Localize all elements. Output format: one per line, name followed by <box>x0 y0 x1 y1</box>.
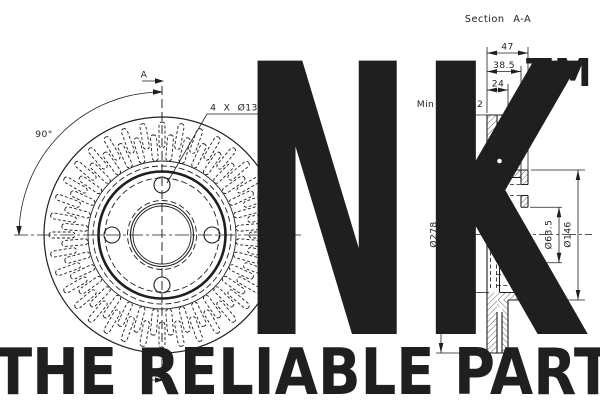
vent-slot <box>70 190 96 206</box>
hat-wall-top <box>487 170 521 178</box>
flange-block-4 <box>521 286 528 301</box>
arc-arrow-top <box>153 89 163 94</box>
vent-merge-bottom <box>497 300 508 307</box>
vent-slot <box>191 301 207 327</box>
vent-slot <box>62 223 88 231</box>
dim-278-label: Ø278 <box>429 221 440 247</box>
vent-slot <box>191 143 207 169</box>
vent-slot <box>64 206 91 219</box>
vent-end-top <box>497 159 502 164</box>
vent-slot <box>78 175 103 195</box>
vent-slot <box>166 309 174 335</box>
dim-136-label: Ø136 <box>450 221 461 247</box>
section-title: Section A-A <box>465 14 532 25</box>
vent-slot <box>89 162 112 185</box>
cut-arrow-top <box>155 78 164 84</box>
vent-end-bottom <box>497 307 502 312</box>
vent-slot <box>133 137 146 164</box>
bolt-note-label: 4 X Ø13.8 R54 <box>210 103 294 114</box>
vent-slot <box>62 239 88 247</box>
vent-slot <box>150 309 158 335</box>
dim-146-label: Ø146 <box>563 221 574 247</box>
drawing-canvas: NK TM THE RELIABLE PART 90° <box>0 0 600 400</box>
section-marker-top: A <box>141 70 164 84</box>
outboard-plate-bottom <box>487 300 497 353</box>
trademark-mark: TM <box>526 51 594 95</box>
flange-block-2 <box>521 196 528 208</box>
vent-slot <box>178 306 191 333</box>
vent-slot <box>102 294 122 319</box>
outboard-plate-top <box>487 115 497 170</box>
dim-38-5-label: 38.5 <box>493 60 515 71</box>
vent-slot <box>213 286 236 309</box>
vent-slot <box>55 194 81 209</box>
cut-label-bottom: A <box>142 369 149 380</box>
angle-arc <box>19 92 162 235</box>
arc-arrow-left <box>16 226 21 236</box>
flange-block-1 <box>521 170 528 185</box>
inboard-plate-top <box>502 115 508 163</box>
vent-slot <box>133 306 146 333</box>
dim-63-5-label: Ø63.5 <box>544 220 555 250</box>
vent-slot <box>117 143 133 169</box>
vent-slot <box>70 264 96 280</box>
dim-47-label: 47 <box>501 42 514 53</box>
angle-note-label: 90° <box>35 129 53 140</box>
vent-slot <box>150 135 158 161</box>
vent-slot <box>89 286 112 309</box>
flange-block-3 <box>521 263 528 275</box>
vent-slot <box>121 128 136 154</box>
vent-slot <box>166 135 174 161</box>
vent-slot <box>213 162 236 185</box>
brake-disc-technical-drawing: NK TM THE RELIABLE PART 90° <box>0 0 600 400</box>
vent-slot <box>117 301 133 327</box>
vent-merge-top <box>497 163 508 170</box>
cut-label-top: A <box>141 70 148 81</box>
vent-slot <box>64 251 91 264</box>
min-thickness-note: Min Th 22.2 <box>417 99 483 110</box>
vent-slot <box>55 262 81 277</box>
inboard-plate-bottom <box>502 307 508 353</box>
dim-24-label: 24 <box>492 79 505 90</box>
tagline-watermark: THE RELIABLE PART <box>0 336 600 400</box>
hat-wall-bottom <box>487 293 521 301</box>
vent-slot <box>202 151 222 176</box>
